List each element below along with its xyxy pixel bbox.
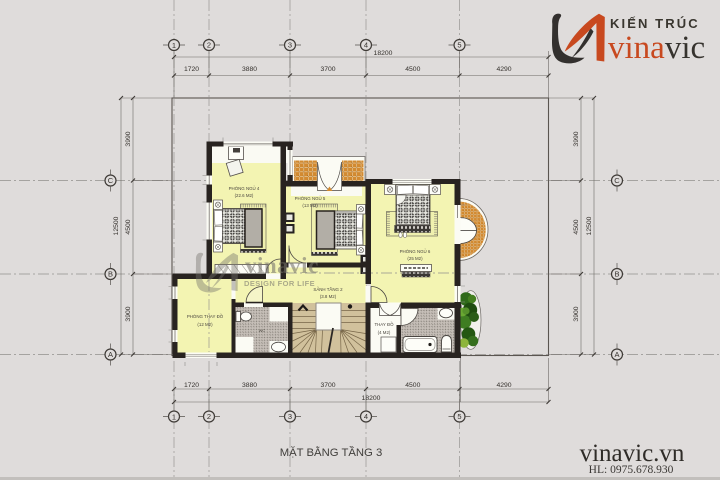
svg-text:(13 M2): (13 M2) — [302, 203, 318, 208]
svg-text:(12 M2): (12 M2) — [197, 322, 213, 327]
svg-text:12500: 12500 — [586, 216, 593, 235]
svg-text:KIẾN TRÚC: KIẾN TRÚC — [610, 16, 700, 31]
svg-text:B: B — [108, 270, 113, 279]
svg-text:12500: 12500 — [113, 216, 120, 235]
svg-text:PHÒNG NGỦ 4: PHÒNG NGỦ 4 — [229, 186, 260, 191]
svg-text:(22.6 M2): (22.6 M2) — [235, 193, 254, 198]
svg-text:B: B — [614, 270, 619, 279]
svg-text:3: 3 — [288, 412, 292, 421]
svg-text:18200: 18200 — [362, 395, 381, 402]
svg-text:HL: 0975.678.930: HL: 0975.678.930 — [589, 464, 674, 476]
svg-text:MẶT BẰNG TẦNG 3: MẶT BẰNG TẦNG 3 — [280, 446, 383, 459]
svg-text:3900: 3900 — [573, 306, 580, 321]
svg-text:2: 2 — [207, 41, 211, 50]
svg-text:4: 4 — [364, 41, 368, 50]
svg-text:1720: 1720 — [184, 66, 199, 73]
svg-text:3990: 3990 — [125, 131, 132, 146]
svg-text:1720: 1720 — [184, 382, 199, 389]
svg-text:4: 4 — [364, 412, 368, 421]
svg-text:PHÒNG THAY ĐỒ: PHÒNG THAY ĐỒ — [187, 314, 224, 319]
svg-text:4500: 4500 — [573, 219, 580, 234]
svg-text:1: 1 — [172, 412, 176, 421]
svg-text:THAY ĐỒ: THAY ĐỒ — [374, 322, 394, 327]
svg-text:SẢNH TẦNG 2: SẢNH TẦNG 2 — [313, 287, 343, 292]
svg-text:4290: 4290 — [496, 66, 511, 73]
svg-text:A: A — [108, 350, 113, 359]
svg-text:A: A — [614, 350, 619, 359]
svg-text:4500: 4500 — [125, 219, 132, 234]
svg-text:3700: 3700 — [320, 382, 335, 389]
svg-text:C: C — [614, 176, 620, 185]
svg-text:5: 5 — [457, 412, 461, 421]
svg-text:4500: 4500 — [405, 382, 420, 389]
svg-text:(3.8 M2): (3.8 M2) — [320, 294, 337, 299]
svg-text:3990: 3990 — [573, 131, 580, 146]
svg-text:3880: 3880 — [242, 382, 257, 389]
svg-text:C: C — [108, 176, 114, 185]
svg-text:PHÒNG NGỦ 6: PHÒNG NGỦ 6 — [400, 249, 431, 254]
svg-text:4500: 4500 — [405, 66, 420, 73]
svg-text:PHÒNG NGỦ 5: PHÒNG NGỦ 5 — [295, 196, 326, 201]
svg-text:2: 2 — [207, 412, 211, 421]
svg-text:(4 M2): (4 M2) — [378, 330, 391, 335]
svg-text:5: 5 — [457, 41, 461, 50]
svg-text:3700: 3700 — [320, 66, 335, 73]
svg-text:3880: 3880 — [242, 66, 257, 73]
svg-text:18200: 18200 — [374, 50, 393, 57]
svg-text:vinavic: vinavic — [608, 30, 705, 66]
svg-text:4290: 4290 — [496, 382, 511, 389]
svg-text:vinavic: vinavic — [245, 253, 319, 278]
svg-text:DESIGN FOR LIFE: DESIGN FOR LIFE — [244, 279, 315, 288]
svg-text:1: 1 — [172, 41, 176, 50]
svg-text:(25 M2): (25 M2) — [407, 256, 423, 261]
svg-text:3900: 3900 — [125, 306, 132, 321]
svg-text:WC: WC — [259, 328, 266, 333]
svg-text:3: 3 — [288, 41, 292, 50]
svg-text:vinavic.vn: vinavic.vn — [580, 440, 685, 467]
